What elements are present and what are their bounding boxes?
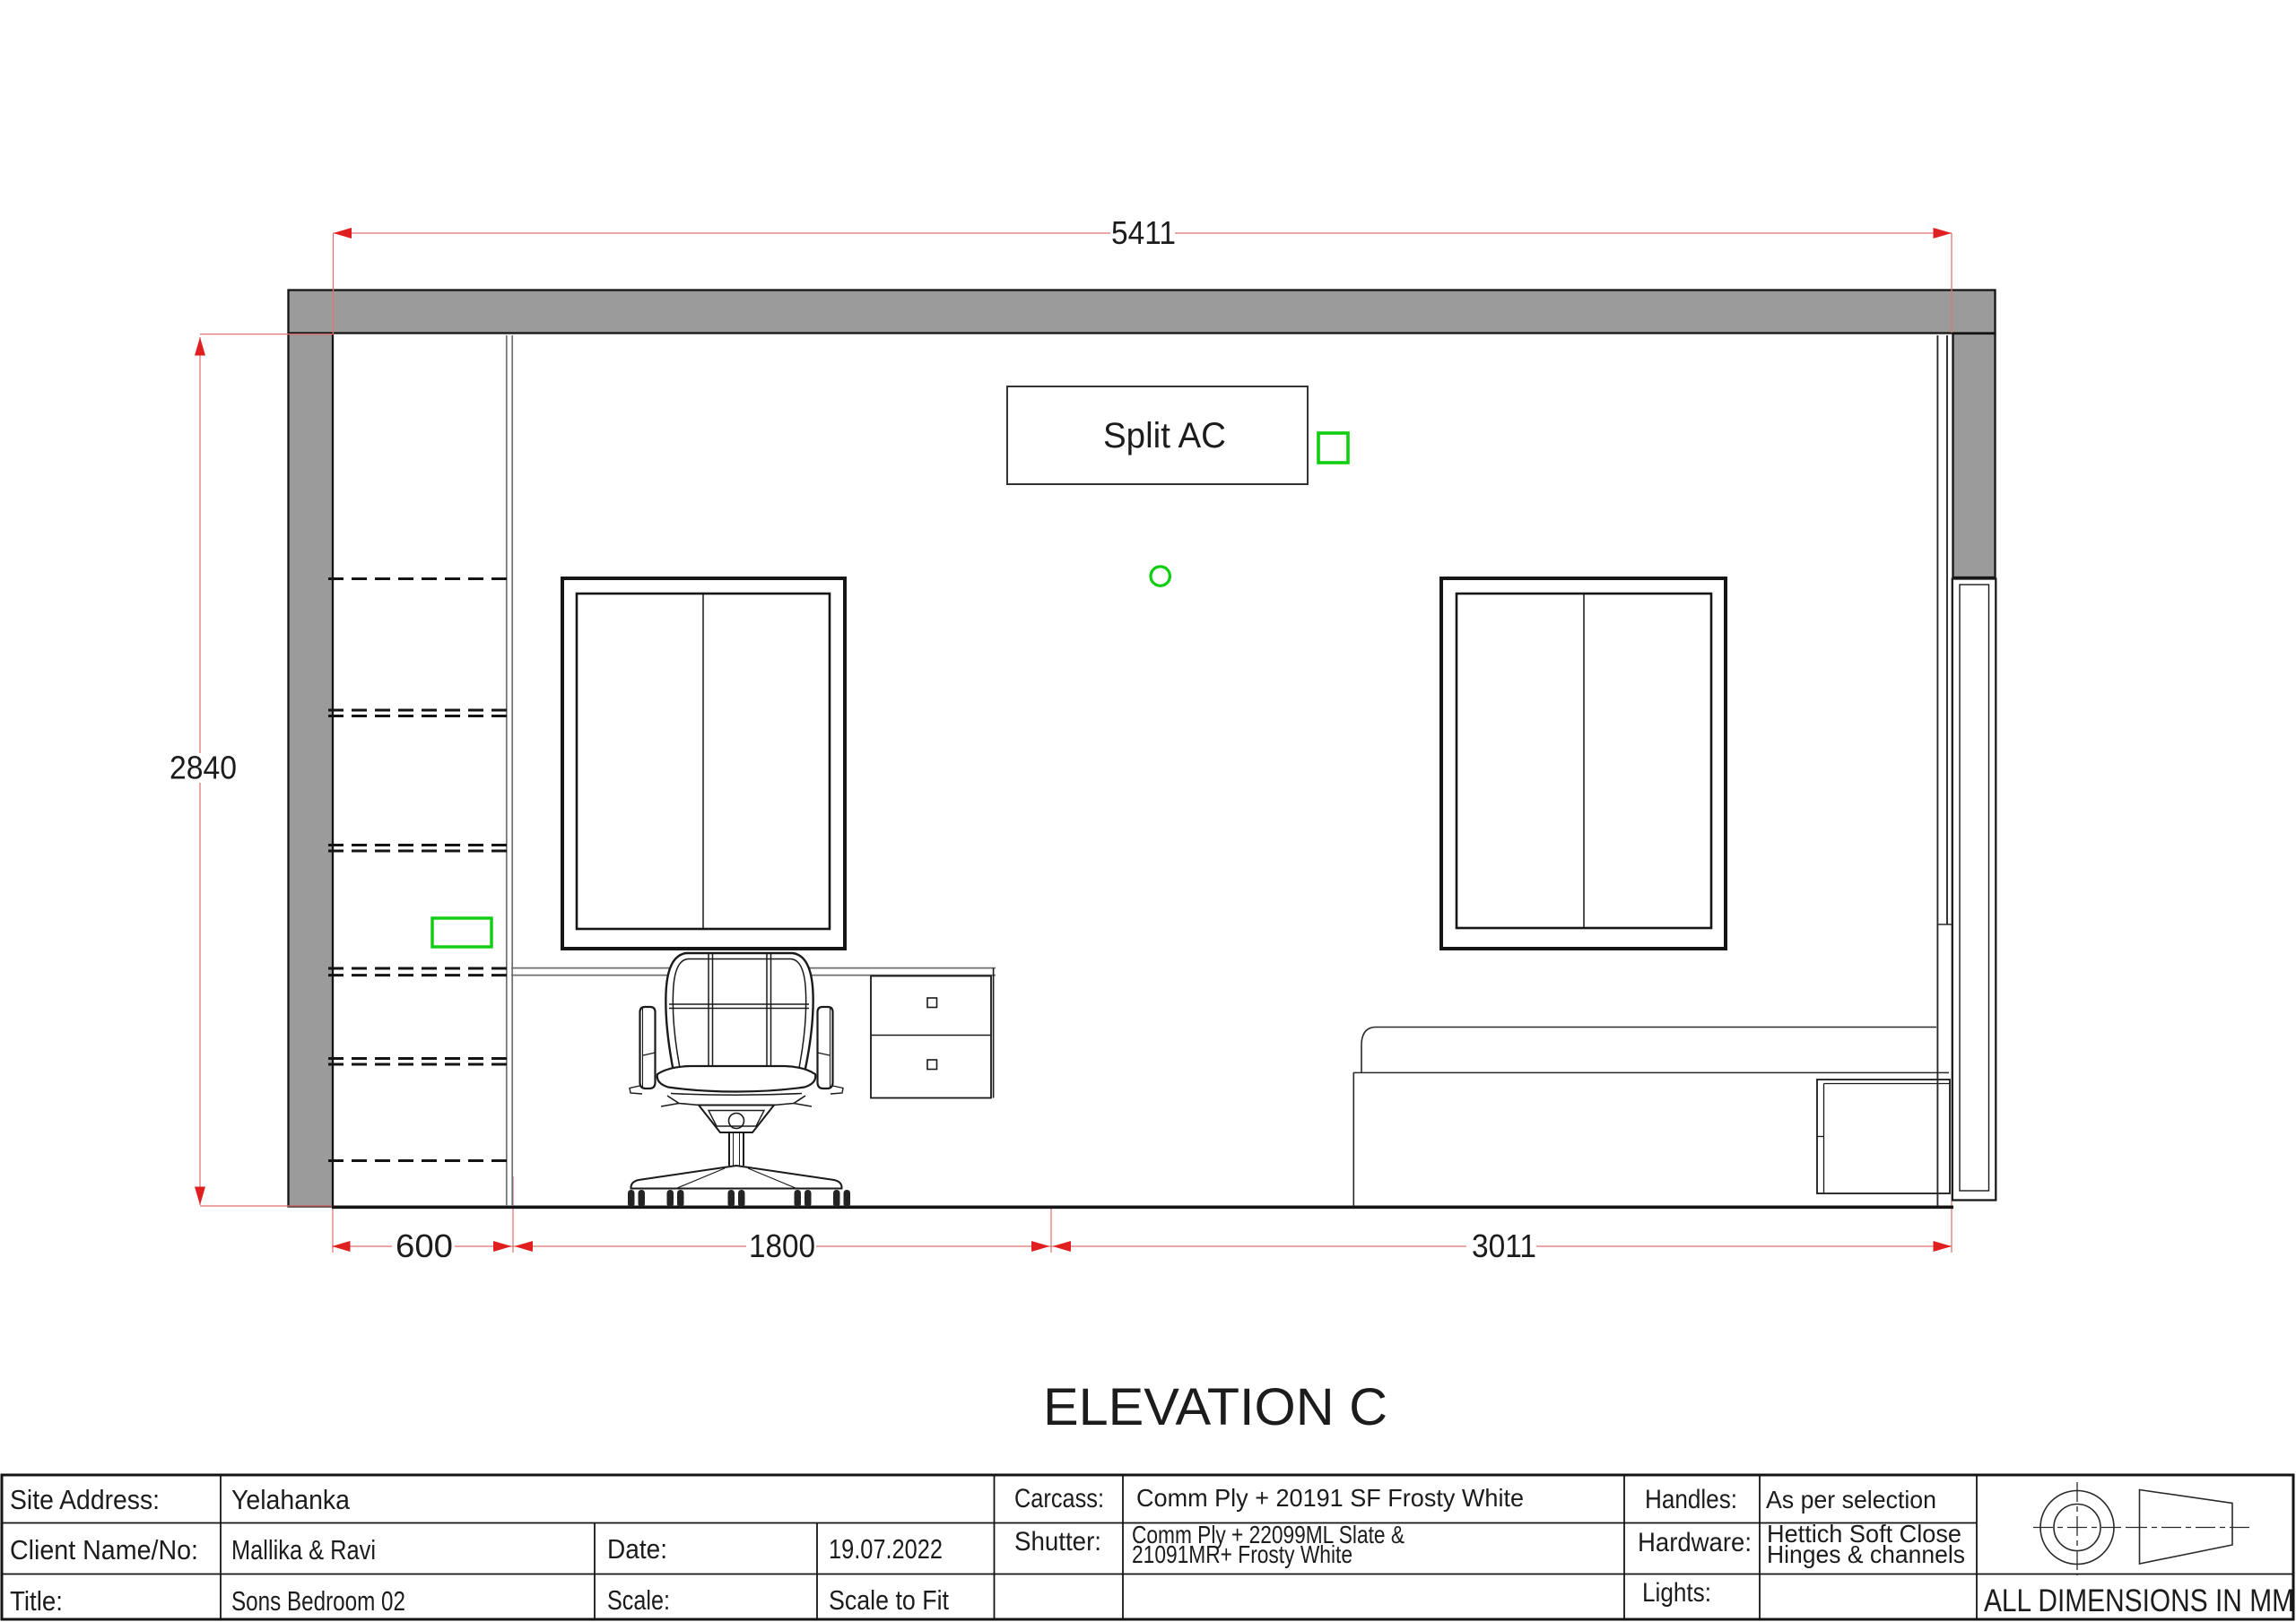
svg-text:As per selection: As per selection <box>1766 1486 1936 1514</box>
svg-text:Hinges & channels: Hinges & channels <box>1767 1540 1965 1568</box>
svg-text:Title:: Title: <box>10 1585 63 1617</box>
svg-text:2840: 2840 <box>170 750 237 786</box>
svg-text:600: 600 <box>396 1227 453 1264</box>
svg-text:ALL DIMENSIONS IN MM: ALL DIMENSIONS IN MM <box>1984 1583 2294 1618</box>
svg-text:Handles:: Handles: <box>1645 1485 1737 1514</box>
svg-text:5411: 5411 <box>1111 214 1176 251</box>
svg-text:Scale:: Scale: <box>607 1584 670 1616</box>
svg-text:Split AC: Split AC <box>1103 416 1226 455</box>
svg-text:Yelahanka: Yelahanka <box>231 1484 351 1515</box>
svg-text:Carcass:: Carcass: <box>1014 1484 1104 1514</box>
svg-text:Mallika & Ravi: Mallika & Ravi <box>231 1534 376 1566</box>
svg-text:3011: 3011 <box>1472 1227 1536 1264</box>
svg-text:Sons Bedroom 02: Sons Bedroom 02 <box>231 1585 405 1617</box>
svg-text:1800: 1800 <box>749 1227 815 1264</box>
svg-text:Lights:: Lights: <box>1642 1578 1711 1608</box>
svg-text:Date:: Date: <box>607 1533 667 1565</box>
svg-text:Client Name/No:: Client Name/No: <box>10 1534 198 1566</box>
svg-text:21091MR+ Frosty White: 21091MR+ Frosty White <box>1132 1540 1352 1568</box>
svg-text:Comm Ply + 20191 SF Frosty Whi: Comm Ply + 20191 SF Frosty White <box>1136 1484 1524 1512</box>
svg-text:ELEVATION C: ELEVATION C <box>1043 1378 1387 1436</box>
svg-text:19.07.2022: 19.07.2022 <box>829 1533 943 1565</box>
svg-text:Shutter:: Shutter: <box>1014 1527 1101 1557</box>
svg-text:Scale to Fit: Scale to Fit <box>829 1584 949 1616</box>
svg-text:Site Address:: Site Address: <box>10 1484 160 1515</box>
svg-text:Hardware:: Hardware: <box>1638 1528 1752 1557</box>
